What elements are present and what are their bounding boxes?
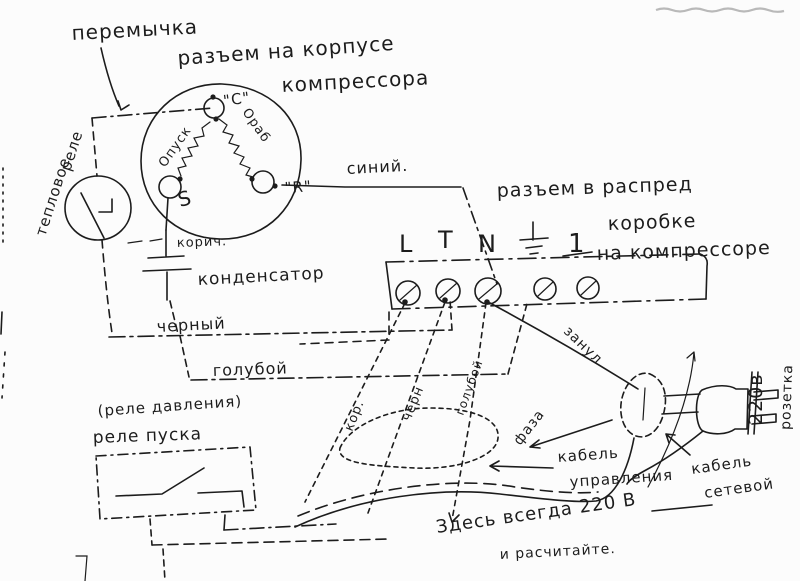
cable-end-tick [643,388,645,420]
control-cable-arrow [490,461,553,471]
mains-wires: занул фаза [490,303,638,448]
terminal-c-label: "C" [222,88,252,110]
mains-cable-label-2: сетевой [703,474,775,502]
thermal-relay-circle [65,176,131,240]
start-winding-label: Oпуск [156,124,195,171]
note-dash [652,505,712,511]
wire-black-label: черный [156,313,226,336]
solder-dot [213,116,218,121]
run-winding-label: Oраб [239,106,273,146]
jumper-arrowhead [118,101,129,110]
jumper-label: перемычка [71,14,199,45]
socket-voltage-label: 220в [745,374,767,425]
terminal-label-n: N [478,230,497,258]
terminal-label-t: T [437,226,454,254]
cable-wire-brown-label: кор. [342,398,368,433]
pressure-switch-contact [116,468,244,507]
note-line-2: и расчитайте. [499,541,616,563]
solder-dot [177,176,182,181]
terminal-r-circle [252,171,274,193]
switch-lead-down-2 [150,519,152,545]
s-terminal-lead [166,198,168,230]
jumper-wire [92,108,213,118]
thermal-relay-lead [102,240,112,333]
control-cable: кор. черн голубой кабель управления [305,302,674,522]
cable-wire-blue-label: голубой [453,358,486,417]
terminal-screws [396,277,599,305]
thermal-relay: тепловое реле [32,128,131,333]
faint-scribble [656,9,784,12]
wire-lightblue-rise [508,300,528,374]
junction-box-caption-2: коробке [607,210,696,235]
capacitor-label: конденсатор [197,263,325,290]
wiring-diagram-sketch: перемычка разъем на корпусе компрессора … [0,0,800,581]
voltage-note: Здесь всегда 220 В и расчитайте. [435,489,712,563]
scanned-schematic-page: перемычка разъем на корпусе компрессора … [0,0,800,581]
pressure-switch-caption-1: (реле давления) [97,392,243,420]
motor-connector-caption-2: компрессора [281,65,430,97]
junction-box-caption-3: на компрессоре [596,237,771,265]
mains-cable-label-1: кабель [690,452,753,478]
terminal-s-label: S [175,185,194,212]
junction-box: разъем в распред коробке на компрессоре … [386,173,771,309]
thermal-relay-contact [81,193,112,238]
terminal-label-l: L [399,230,413,258]
control-cable-label-1: кабель [557,444,619,466]
corner-mark [76,556,87,581]
ground-symbol [520,222,548,254]
motor-connector-caption-1: разъем на корпусе [177,31,396,70]
wire-black-rise [450,300,452,330]
edge-marks-3 [2,352,5,398]
wire-lightblue-label: голубой [212,358,288,380]
wire-phase-arrow [530,420,612,448]
wire-neutral-run [490,303,638,389]
cable-wire-black-label: черн [400,384,428,423]
wire-brown-label: корич. [177,234,228,251]
dash-stubs [128,239,162,243]
jumper-arrow-line [101,48,119,106]
terminal-r-label: "R" [284,177,312,197]
switch-lead-down [224,515,225,530]
jumper-drop-wire [92,118,97,176]
note-line-1: Здесь всегда 220 В [435,489,638,538]
cable-sheath-ellipse [340,408,498,468]
solder-dot [272,183,277,188]
capacitor-branch: корич. конденсатор [128,198,325,377]
solder-dot [210,94,215,99]
lead-to-page-edge [163,549,165,581]
junction-box-caption-1: разъем в распред [496,173,693,202]
switch-lead-right [224,524,336,530]
plug-body [696,386,748,434]
motor-connector: разъем на корпусе компрессора "C" S "R" … [141,31,430,239]
switch-lead-right-2 [152,539,390,545]
thermal-relay-label-2: реле [57,128,87,173]
run-winding-coil [219,119,253,177]
capacitor-lead-down [170,301,189,377]
wire-blue-label: синий. [346,156,408,178]
edge-marks-2 [1,312,2,334]
pressure-switch-caption-2: реле пуска [92,424,202,448]
socket-label: розетка [778,364,796,430]
pressure-switch-box [96,447,256,519]
block-stub-wire [300,312,389,344]
